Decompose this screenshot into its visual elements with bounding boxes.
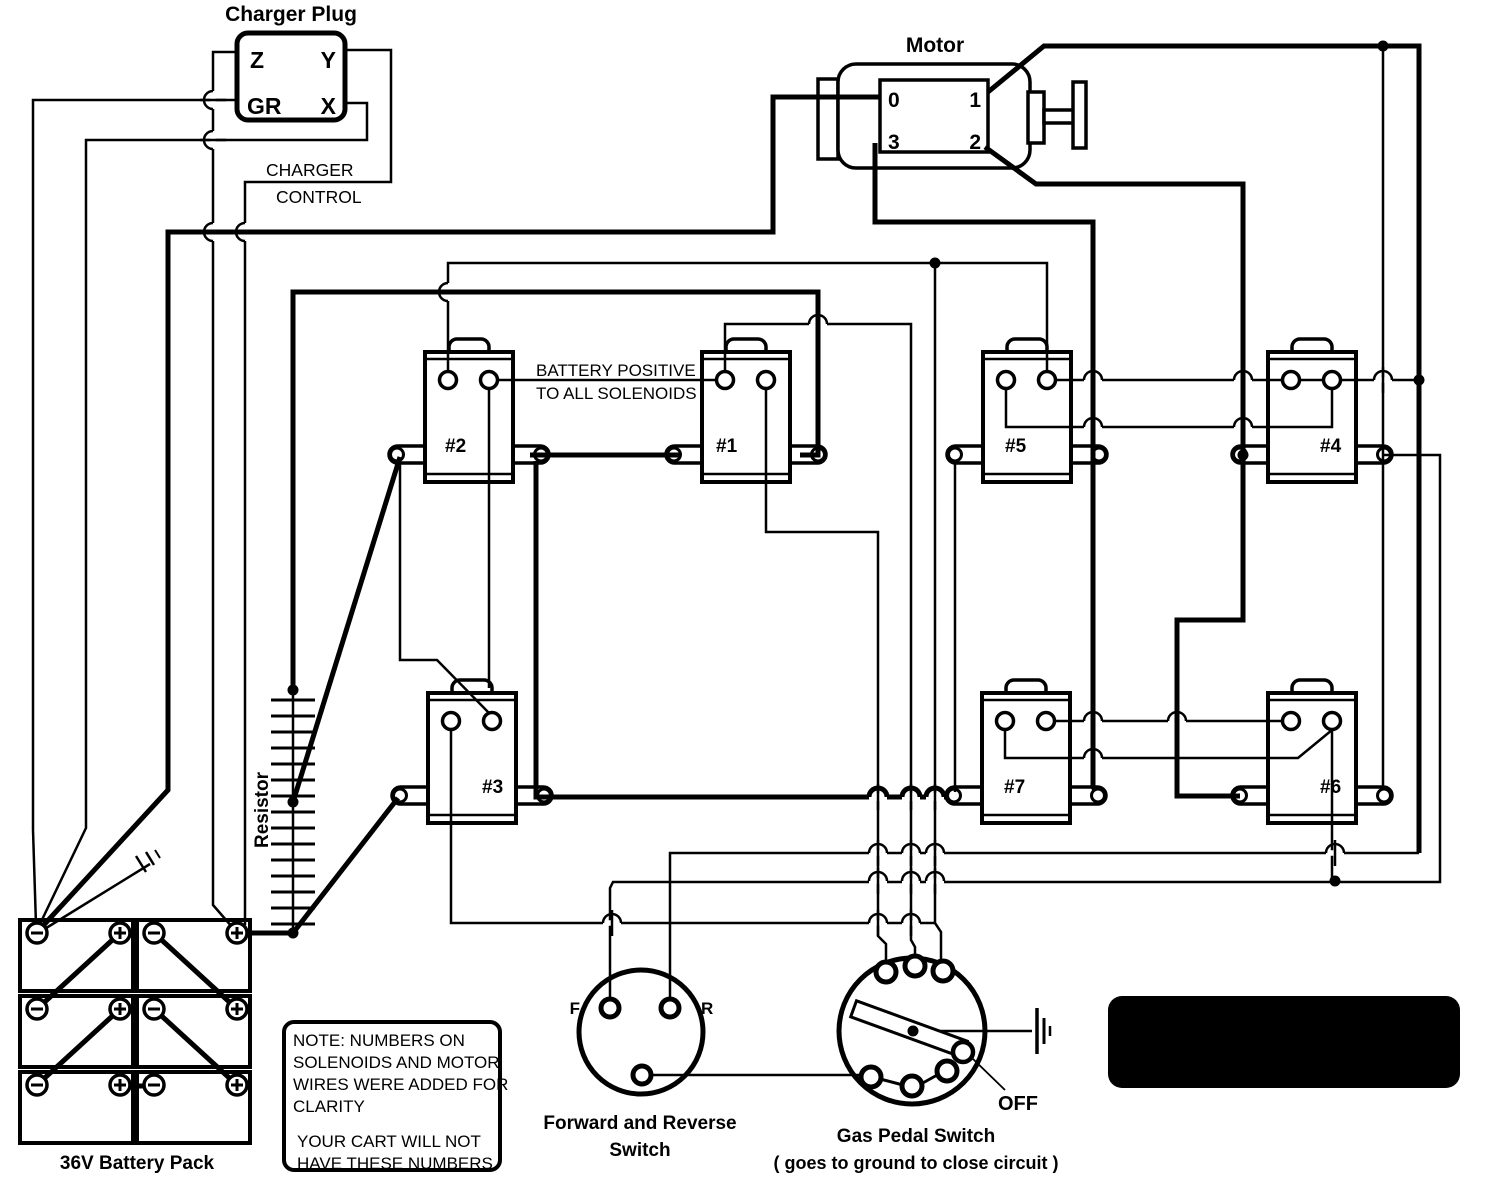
wire-output-bus — [536, 461, 946, 797]
motor-shaft-hub — [1028, 92, 1044, 143]
motor-terminal-3: 3 — [888, 131, 900, 154]
charger-plug-title: Charger Plug — [225, 3, 357, 26]
solenoid-4-label: #4 — [1320, 436, 1342, 457]
solenoid-2-body — [389, 339, 549, 482]
wire-resistor-tap — [293, 457, 400, 802]
note-line-6: YOUR CART WILL NOT — [297, 1132, 481, 1151]
charger-terminal-gr: GR — [247, 93, 282, 119]
gas-pedal-pivot — [908, 1026, 919, 1037]
solenoid-5-label: #5 — [1005, 436, 1027, 457]
solenoid-6-body — [1232, 680, 1392, 823]
wire-hops — [200, 91, 1392, 936]
solenoid-5-body — [947, 339, 1107, 482]
wire-solenoid3-to-gas — [451, 730, 935, 923]
gas-off-label: OFF — [998, 1093, 1038, 1115]
wire-charger-z-to-battery — [213, 52, 237, 928]
ground-symbol — [1037, 1008, 1050, 1054]
gas-switch-label-line2: ( goes to ground to close circuit ) — [773, 1153, 1058, 1173]
wire-positive-to-solenoid3-lug — [293, 798, 398, 933]
schematic-canvas: Charger Plug Z Y GR X CHARGER CONTROL Mo… — [0, 0, 1500, 1200]
note-line-1: NOTE: NUMBERS ON — [293, 1031, 465, 1050]
gas-switch-label-line1: Gas Pedal Switch — [837, 1126, 995, 1147]
solenoid-6-label: #6 — [1320, 777, 1341, 798]
motor-end-cap — [818, 79, 838, 159]
bus-label-line2: TO ALL SOLENOIDS — [536, 384, 697, 403]
fr-switch-label-line2: Switch — [609, 1140, 670, 1161]
charger-terminal-x: X — [321, 93, 337, 119]
solenoid-7-label: #7 — [1004, 777, 1025, 798]
solenoid-4-body — [1232, 339, 1392, 482]
wiring-diagram: Charger Plug Z Y GR X CHARGER CONTROL Mo… — [0, 0, 1500, 1200]
note-line-2: SOLENOIDS AND MOTOR — [293, 1053, 500, 1072]
note-line-3: WIRES WERE ADDED FOR — [293, 1075, 508, 1094]
wire-reverse-terminal — [670, 853, 1419, 999]
fr-terminal-f: F — [570, 999, 580, 1018]
wire-charger-gr-to-battery — [33, 100, 237, 925]
note-line-4: CLARITY — [293, 1097, 365, 1116]
motor-title: Motor — [906, 34, 964, 57]
motor — [818, 64, 1086, 168]
battery-pack-label: 36V Battery Pack — [60, 1153, 215, 1174]
solenoid-3-body — [392, 680, 552, 823]
fr-switch-label-line1: Forward and Reverse — [543, 1113, 736, 1134]
motor-terminal-1: 1 — [969, 89, 981, 112]
fr-terminal-r: R — [701, 999, 713, 1018]
battery-pack — [20, 920, 250, 1143]
off-pointer-line — [972, 1058, 1005, 1090]
break-tick — [146, 852, 154, 865]
title-plate-line2: 1950s — [1285, 1052, 1346, 1077]
charger-terminal-y: Y — [321, 47, 336, 73]
title-plate-line1: EARLY EZ-GO GOLF CART — [1124, 1012, 1445, 1040]
motor-terminal-0: 0 — [888, 89, 900, 112]
resistor-label: Resistor — [252, 771, 273, 848]
wire-charger-x-to-battery — [39, 103, 367, 926]
gas-pedal-lever-end — [953, 1042, 973, 1062]
motor-terminal-2: 2 — [969, 131, 981, 154]
note-line-7: HAVE THESE NUMBERS — [297, 1154, 493, 1173]
solenoid-3-label: #3 — [482, 777, 503, 798]
charger-terminal-z: Z — [250, 47, 264, 73]
charger-control-line1: CHARGER — [266, 160, 354, 180]
bus-label-line1: BATTERY POSITIVE — [536, 361, 696, 380]
solenoid-terminals — [440, 372, 1341, 730]
solenoid-2-label: #2 — [445, 436, 466, 457]
title-plate — [1108, 996, 1460, 1088]
solenoid-7-body — [946, 680, 1106, 823]
wire-solenoid2-lug-to-solenoid3 — [400, 463, 490, 714]
break-tick — [155, 850, 160, 858]
motor-shaft — [1044, 110, 1074, 123]
solenoid-1-label: #1 — [716, 436, 738, 457]
motor-shaft-flange — [1073, 82, 1086, 148]
charger-control-line2: CONTROL — [276, 187, 362, 207]
